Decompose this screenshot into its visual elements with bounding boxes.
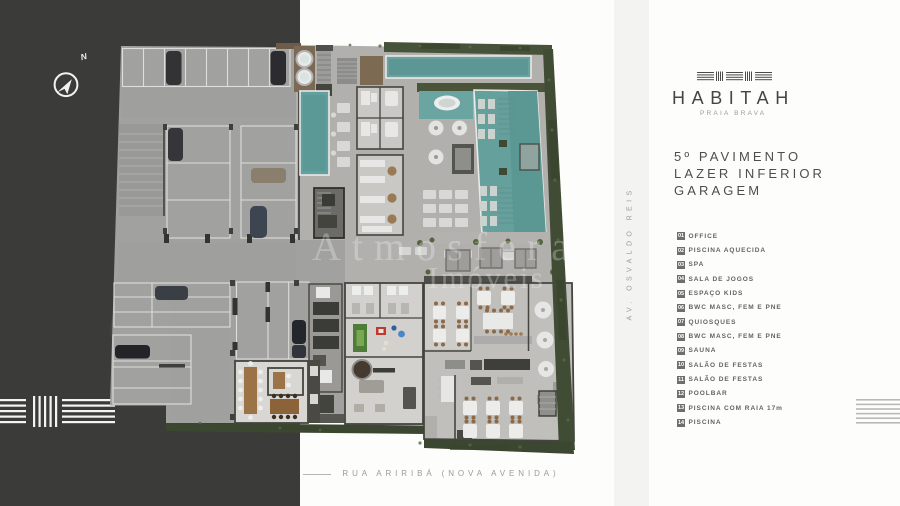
svg-text:Imóveis: Imóveis (428, 260, 545, 295)
